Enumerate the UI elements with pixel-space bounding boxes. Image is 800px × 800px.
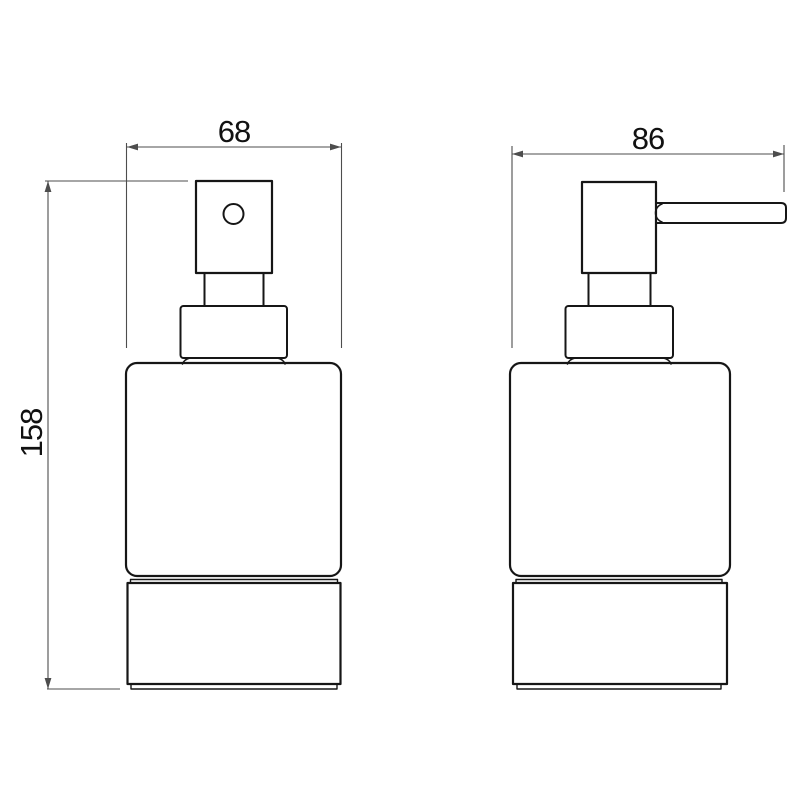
side-pump-head <box>582 182 656 273</box>
side-pump-collar <box>566 306 674 358</box>
front-view <box>126 181 341 689</box>
dimension-label-height: 158 <box>14 409 49 458</box>
dimension-label-side-width: 86 <box>632 121 664 156</box>
dimension-side-width: 86 <box>512 121 784 348</box>
side-bottle-body <box>510 363 730 576</box>
front-pump-collar <box>181 306 288 358</box>
side-base-cup <box>513 583 727 684</box>
dimension-label-front-width: 68 <box>218 114 250 149</box>
front-nozzle-hole-icon <box>224 204 244 224</box>
front-bottle-body <box>126 363 341 576</box>
drawing-canvas: 68 86 158 <box>0 0 800 800</box>
front-pump-neck <box>205 273 264 306</box>
front-pump-head <box>196 181 272 273</box>
dimension-front-width: 68 <box>127 114 342 348</box>
side-view <box>510 182 786 689</box>
side-spout <box>656 203 786 223</box>
side-pump-neck <box>589 273 651 306</box>
technical-drawing: 68 86 158 <box>0 0 800 800</box>
front-base-cup <box>128 583 341 684</box>
dimension-height: 158 <box>14 181 188 689</box>
